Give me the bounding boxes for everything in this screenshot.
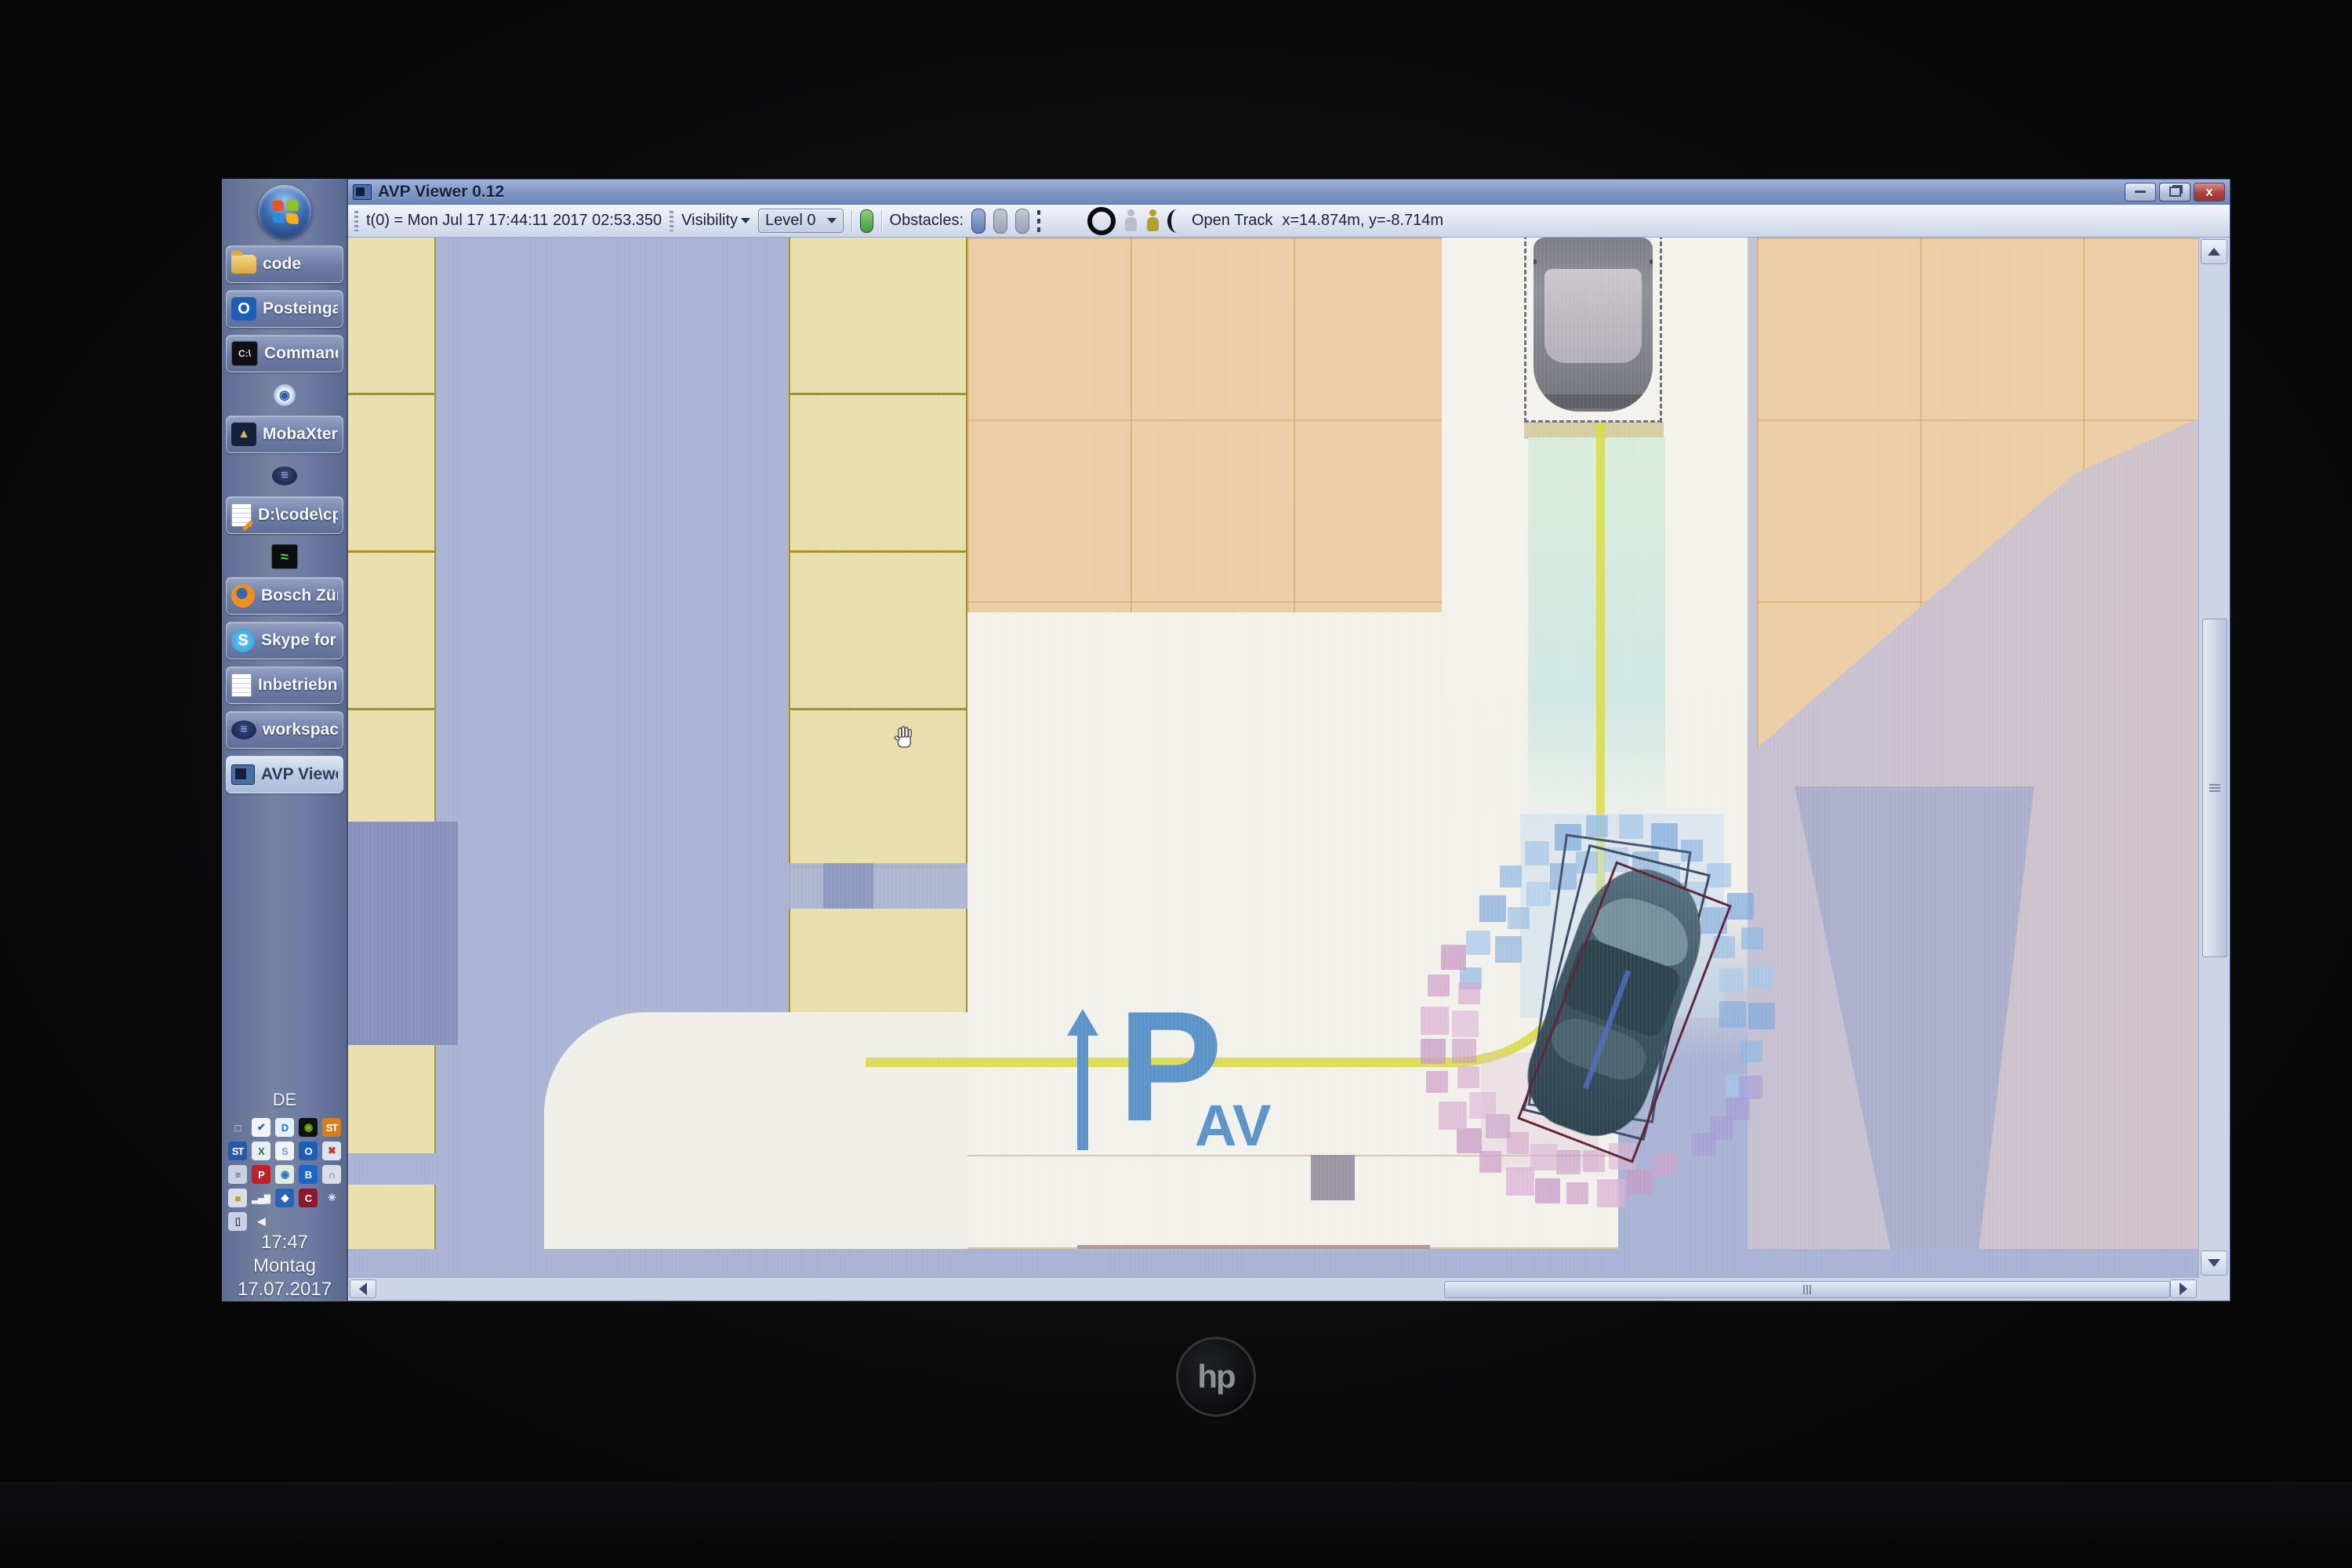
scroll-down-button[interactable] bbox=[2201, 1250, 2227, 1276]
antivirus-check-icon[interactable]: ✔ bbox=[252, 1118, 270, 1137]
network-mesh-icon[interactable]: ◆ bbox=[275, 1189, 294, 1207]
occupancy-cell bbox=[1479, 895, 1506, 922]
chevron-down-icon bbox=[741, 218, 750, 223]
clock-weekday: Montag bbox=[222, 1254, 347, 1278]
contacts-unavailable-icon[interactable]: ✖ bbox=[322, 1142, 341, 1160]
vertical-scrollbar-thumb[interactable] bbox=[2202, 619, 2227, 957]
window-title: AVP Viewer 0.12 bbox=[378, 183, 504, 201]
occupancy-cell bbox=[1495, 936, 1522, 963]
occupancy-cell bbox=[1627, 1170, 1652, 1195]
occupancy-cell bbox=[1654, 1154, 1676, 1176]
map-region: P AV bbox=[348, 238, 2230, 1301]
occupancy-cell bbox=[1748, 965, 1773, 989]
timestamp-label: t(0) = Mon Jul 17 17:44:11 2017 02:53.35… bbox=[366, 212, 662, 230]
pulse-secure-icon[interactable]: P bbox=[252, 1165, 270, 1184]
scroll-right-button[interactable] bbox=[2170, 1279, 2197, 1298]
occupancy-cell bbox=[1719, 1001, 1746, 1028]
open-track-button[interactable]: Open Track bbox=[1192, 212, 1272, 230]
language-indicator[interactable]: DE bbox=[222, 1090, 347, 1110]
occupancy-cell bbox=[1741, 927, 1763, 949]
snowflake-icon[interactable]: ✳ bbox=[322, 1189, 341, 1207]
occupancy-cell bbox=[1748, 1003, 1775, 1029]
taskbar-item-bosch-z-nder[interactable]: Bosch Zünder ... bbox=[226, 577, 343, 615]
occupancy-cell bbox=[1439, 1102, 1467, 1130]
sync-app-icon[interactable]: D bbox=[275, 1118, 294, 1137]
taskbar-item-code[interactable]: code bbox=[226, 245, 343, 283]
skype-offline-icon[interactable]: S bbox=[275, 1142, 294, 1160]
toolbar: t(0) = Mon Jul 17 17:44:11 2017 02:53.35… bbox=[348, 205, 2230, 238]
eclipse-icon bbox=[231, 720, 256, 739]
taskbar-item-label: Inbetriebnah... bbox=[258, 676, 338, 695]
laptop-base bbox=[0, 1482, 2352, 1568]
mobaxterm-icon bbox=[231, 423, 256, 446]
scroll-up-button[interactable] bbox=[2201, 239, 2227, 264]
close-button[interactable]: x bbox=[2194, 183, 2225, 201]
outlook-icon bbox=[231, 297, 256, 321]
windows-logo-icon bbox=[273, 199, 299, 224]
system-tray: □✔D◉STSTXSO✖≡P◉B∩■▂▄▆◆C✳▯◀ bbox=[228, 1118, 343, 1231]
taskbar-item-label: MobaXterm bbox=[263, 425, 338, 444]
occupancy-cell bbox=[1508, 907, 1530, 929]
hand-cursor bbox=[893, 725, 916, 752]
app-loading-icon bbox=[274, 384, 296, 406]
occupancy-cell bbox=[1479, 1151, 1501, 1173]
bluetooth-icon[interactable]: B bbox=[299, 1165, 318, 1184]
taskbar-item-system-monitor-icon[interactable] bbox=[226, 541, 343, 572]
st-orange-icon[interactable]: ST bbox=[322, 1118, 341, 1137]
laptop-screen: codePosteingang - ...Command Pr...MobaXt… bbox=[222, 179, 2230, 1301]
firefox-icon bbox=[231, 584, 255, 608]
trend-micro-icon[interactable]: C bbox=[299, 1189, 318, 1207]
obstacles-label: Obstacles: bbox=[890, 212, 964, 230]
taskbar-item-eclipse-icon[interactable] bbox=[226, 460, 343, 492]
taskbar-item-label: AVP Viewer 0.12 bbox=[261, 765, 338, 784]
occupancy-cell bbox=[1457, 1128, 1482, 1153]
occupancy-cell bbox=[1452, 1011, 1479, 1037]
occupancy-cell bbox=[1469, 1092, 1496, 1119]
taskbar-clock[interactable]: 17:47 Montag 17.07.2017 bbox=[222, 1231, 347, 1301]
occupancy-cell bbox=[1597, 1179, 1625, 1207]
restore-button[interactable] bbox=[2159, 183, 2190, 201]
occupancy-cell bbox=[1530, 1144, 1557, 1171]
signal-strength-icon[interactable]: ▂▄▆ bbox=[252, 1189, 270, 1207]
toolbar-grip-icon[interactable] bbox=[354, 211, 358, 231]
taskbar-item-workspace-p[interactable]: workspace - P... bbox=[226, 711, 343, 749]
taskbar: codePosteingang - ...Command Pr...MobaXt… bbox=[222, 179, 347, 1301]
taskbar-item-label: code bbox=[263, 255, 301, 274]
occupancy-cell bbox=[1421, 1039, 1446, 1064]
occupancy-cell bbox=[1441, 945, 1466, 970]
dashed-line-toggle-icon[interactable] bbox=[1037, 210, 1040, 232]
taskbar-item-label: Posteingang - ... bbox=[263, 299, 338, 318]
pav-logo-av: AV bbox=[1195, 1092, 1271, 1159]
taskbar-item-inbetriebnah[interactable]: Inbetriebnah... bbox=[226, 666, 343, 704]
taskbar-item-label: Command Pr... bbox=[264, 344, 338, 363]
st-blue-icon[interactable]: ST bbox=[228, 1142, 247, 1160]
occupancy-cell bbox=[1466, 931, 1490, 955]
pedestrian-highlight-toggle-icon[interactable] bbox=[1145, 209, 1160, 233]
nvidia-icon[interactable]: ◉ bbox=[299, 1118, 318, 1137]
eclipse-icon bbox=[272, 466, 297, 485]
occupancy-cell bbox=[1526, 882, 1551, 906]
occupancy-cell bbox=[1457, 1066, 1479, 1088]
start-button[interactable] bbox=[258, 185, 311, 238]
avp-viewer-window: AVP Viewer 0.12 x t(0) = Mon Jul 17 17:4… bbox=[347, 179, 2230, 1301]
occupancy-cell bbox=[1586, 815, 1608, 837]
occupancy-cell bbox=[1719, 968, 1744, 993]
chevron-down-icon bbox=[827, 218, 837, 223]
headset-muted-icon[interactable]: ∩ bbox=[322, 1165, 341, 1184]
pedestrian-toggle-icon[interactable] bbox=[1123, 209, 1138, 233]
occupancy-cell bbox=[1583, 1150, 1605, 1172]
occupancy-cell bbox=[1740, 1040, 1762, 1062]
occupancy-cell bbox=[1500, 866, 1522, 887]
level-dropdown[interactable]: Level 0 bbox=[758, 209, 844, 233]
visibility-menu[interactable]: Visibility bbox=[681, 212, 750, 230]
occupancy-cell bbox=[1506, 1167, 1534, 1196]
phone-icon[interactable]: ▯ bbox=[228, 1212, 247, 1231]
occupancy-cell bbox=[1428, 975, 1450, 996]
title-bar: AVP Viewer 0.12 x bbox=[348, 180, 2230, 205]
taskbar-item-command-pr[interactable]: Command Pr... bbox=[226, 335, 343, 372]
clock-time: 17:47 bbox=[222, 1231, 347, 1254]
horizontal-scrollbar-thumb[interactable] bbox=[1444, 1281, 2170, 1298]
system-monitor-icon bbox=[271, 544, 298, 569]
occupancy-cell bbox=[1556, 1150, 1581, 1174]
pav-logo: P AV bbox=[1077, 1007, 1312, 1180]
globe-sync-icon[interactable]: ◉ bbox=[275, 1165, 294, 1184]
credential-lock-icon[interactable]: ■ bbox=[228, 1189, 247, 1207]
circle-tool-icon[interactable] bbox=[1087, 207, 1116, 235]
horizontal-scrollbar[interactable] bbox=[348, 1277, 2198, 1301]
spreadsheet-icon[interactable]: X bbox=[252, 1142, 270, 1160]
taskbar-item-label: workspace - P... bbox=[263, 720, 338, 739]
occupancy-cell bbox=[1452, 1039, 1476, 1063]
occupancy-cell bbox=[1739, 1076, 1762, 1099]
occupancy-cell bbox=[1458, 982, 1480, 1004]
command-prompt-icon bbox=[231, 341, 258, 366]
hp-logo: hp bbox=[1176, 1337, 1256, 1417]
folder-icon bbox=[231, 255, 256, 274]
minimize-button[interactable] bbox=[2125, 183, 2156, 201]
avp-viewer-icon bbox=[231, 764, 255, 785]
taskbar-items: codePosteingang - ...Command Pr...MobaXt… bbox=[222, 241, 347, 800]
scroll-left-button[interactable] bbox=[350, 1279, 376, 1298]
vertical-scrollbar[interactable] bbox=[2198, 238, 2230, 1277]
arrow-up-icon bbox=[1077, 1025, 1088, 1150]
display-settings-icon[interactable]: □ bbox=[228, 1118, 247, 1137]
taskbar-item-app-loading-icon[interactable] bbox=[226, 379, 343, 411]
occupancy-cell bbox=[1566, 1182, 1588, 1204]
notepad-edit-icon bbox=[231, 503, 252, 527]
taskbar-item-posteingang[interactable]: Posteingang - ... bbox=[226, 290, 343, 328]
taskbar-item-label: Bosch Zünder ... bbox=[261, 586, 338, 605]
toolbar-grip-icon[interactable] bbox=[670, 211, 673, 231]
avp-viewer-icon[interactable] bbox=[353, 184, 372, 200]
obstacle-vehicle-toggle-icon[interactable] bbox=[993, 209, 1007, 234]
taskbar-item-label: D:\code\cp.av... bbox=[258, 506, 338, 524]
obstacle-vehicle-toggle-icon[interactable] bbox=[971, 209, 985, 234]
taskbar-item-mobaxterm[interactable]: MobaXterm bbox=[226, 416, 343, 453]
occupancy-cell bbox=[1692, 1133, 1715, 1156]
outlook-tray-icon[interactable]: O bbox=[299, 1142, 318, 1160]
skype-icon bbox=[231, 629, 255, 652]
volume-icon[interactable]: ◀ bbox=[252, 1212, 270, 1231]
occupancy-cell bbox=[1535, 1178, 1560, 1203]
track-curve-icon[interactable] bbox=[1167, 209, 1184, 233]
taskbar-item-avp-viewer-0-12[interactable]: AVP Viewer 0.12 bbox=[226, 756, 343, 793]
taskbar-item-d-code-cp-av[interactable]: D:\code\cp.av... bbox=[226, 496, 343, 534]
occupancy-cell bbox=[1426, 1071, 1448, 1093]
map-canvas[interactable]: P AV bbox=[348, 238, 2198, 1277]
taskbar-item-label: Skype for Busi... bbox=[261, 631, 338, 650]
obstacle-vehicle-toggle-icon[interactable] bbox=[1015, 209, 1029, 234]
cursor-coordinates-label: x=14.874m, y=-8.714m bbox=[1282, 212, 1443, 230]
occupancy-cell bbox=[1421, 1007, 1449, 1035]
scrollbar-corner bbox=[2198, 1277, 2230, 1301]
ego-vehicle-toggle-icon[interactable] bbox=[860, 209, 873, 233]
taskbar-item-skype-for-busi[interactable]: Skype for Busi... bbox=[226, 622, 343, 659]
network-tree-icon[interactable]: ≡ bbox=[228, 1165, 247, 1184]
clock-date: 17.07.2017 bbox=[222, 1278, 347, 1301]
occupancy-cell bbox=[1525, 841, 1549, 866]
notepad-icon bbox=[231, 673, 252, 697]
occupancy-cell bbox=[1619, 815, 1643, 839]
